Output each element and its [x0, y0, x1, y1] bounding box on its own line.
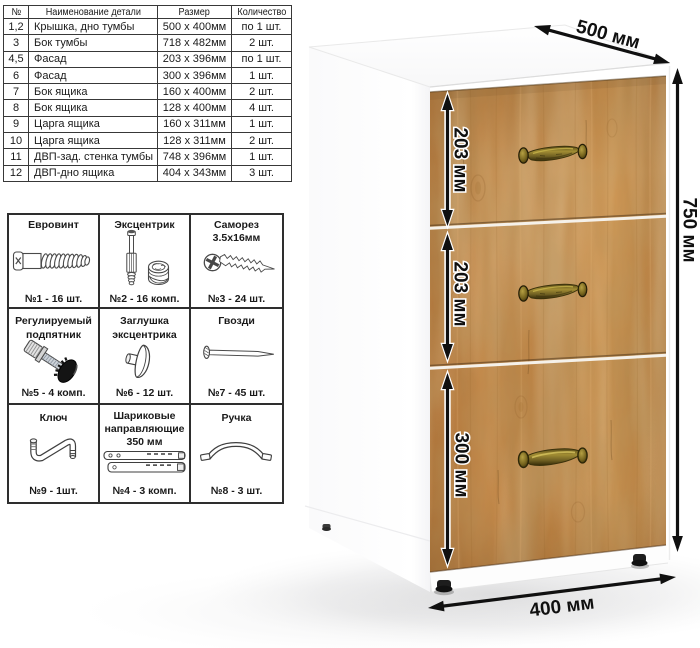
- svg-text:750 мм: 750 мм: [679, 197, 700, 262]
- svg-text:300 мм: 300 мм: [451, 432, 472, 497]
- svg-text:203 мм: 203 мм: [450, 127, 471, 192]
- svg-text:203 мм: 203 мм: [450, 261, 471, 326]
